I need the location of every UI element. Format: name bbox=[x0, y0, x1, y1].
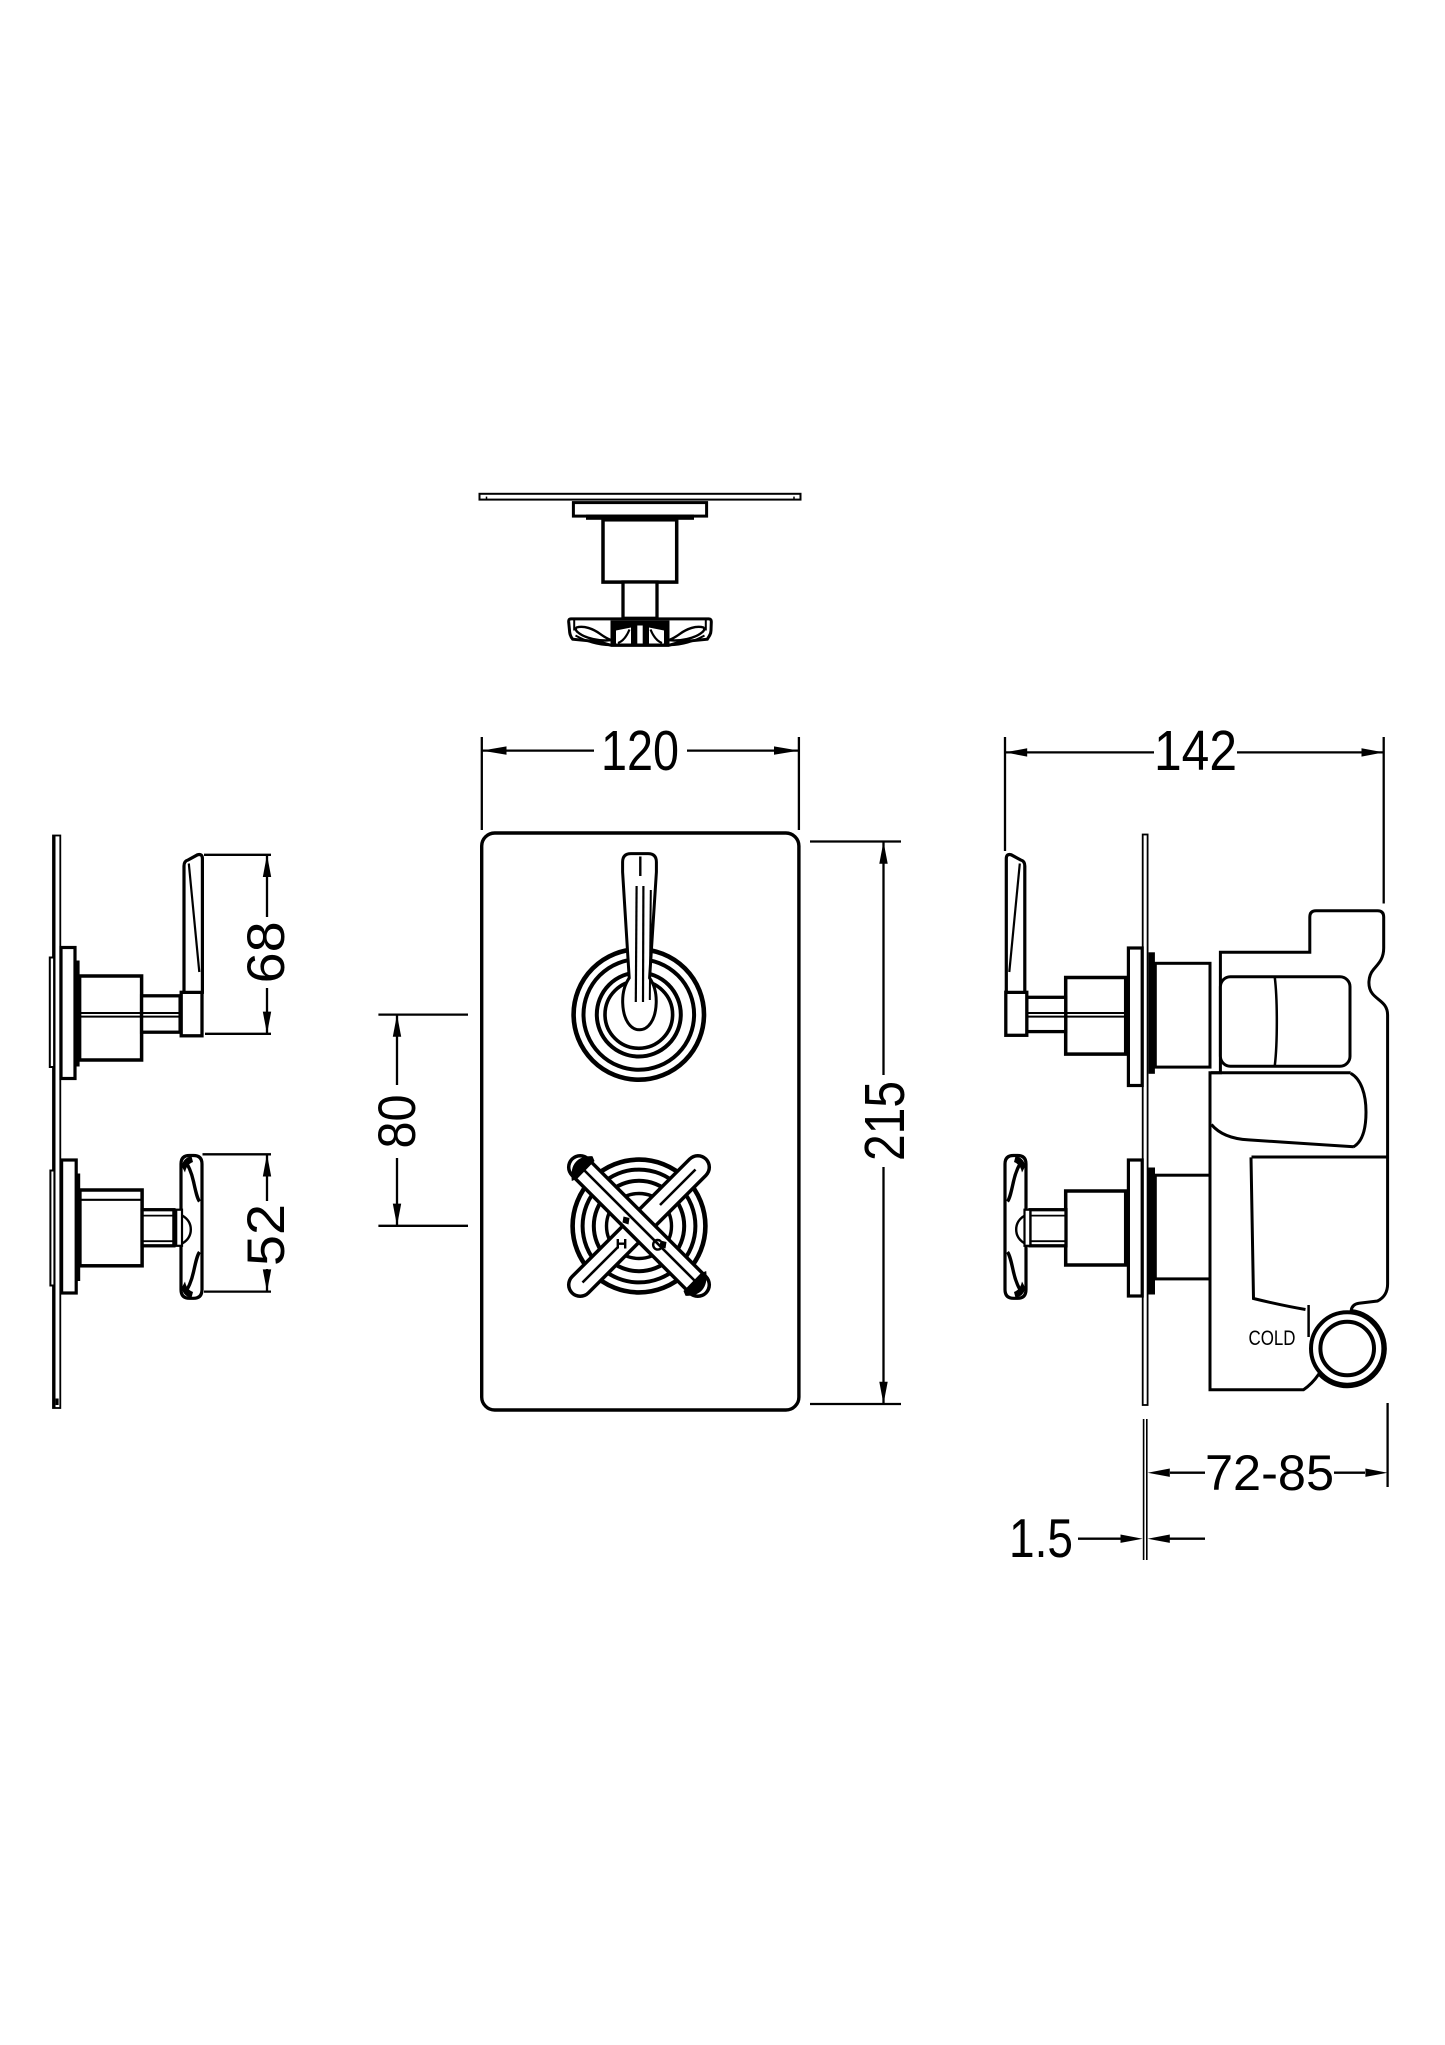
svg-text:52: 52 bbox=[237, 1204, 296, 1266]
svg-text:1.5: 1.5 bbox=[1009, 1507, 1073, 1569]
svg-text:68: 68 bbox=[237, 921, 296, 983]
svg-text:72-85: 72-85 bbox=[1205, 1445, 1334, 1501]
svg-text:COLD: COLD bbox=[1249, 1326, 1296, 1350]
svg-text:142: 142 bbox=[1154, 719, 1237, 783]
svg-text:80: 80 bbox=[368, 1095, 427, 1149]
svg-text:120: 120 bbox=[601, 719, 679, 783]
svg-text:215: 215 bbox=[853, 1081, 917, 1161]
